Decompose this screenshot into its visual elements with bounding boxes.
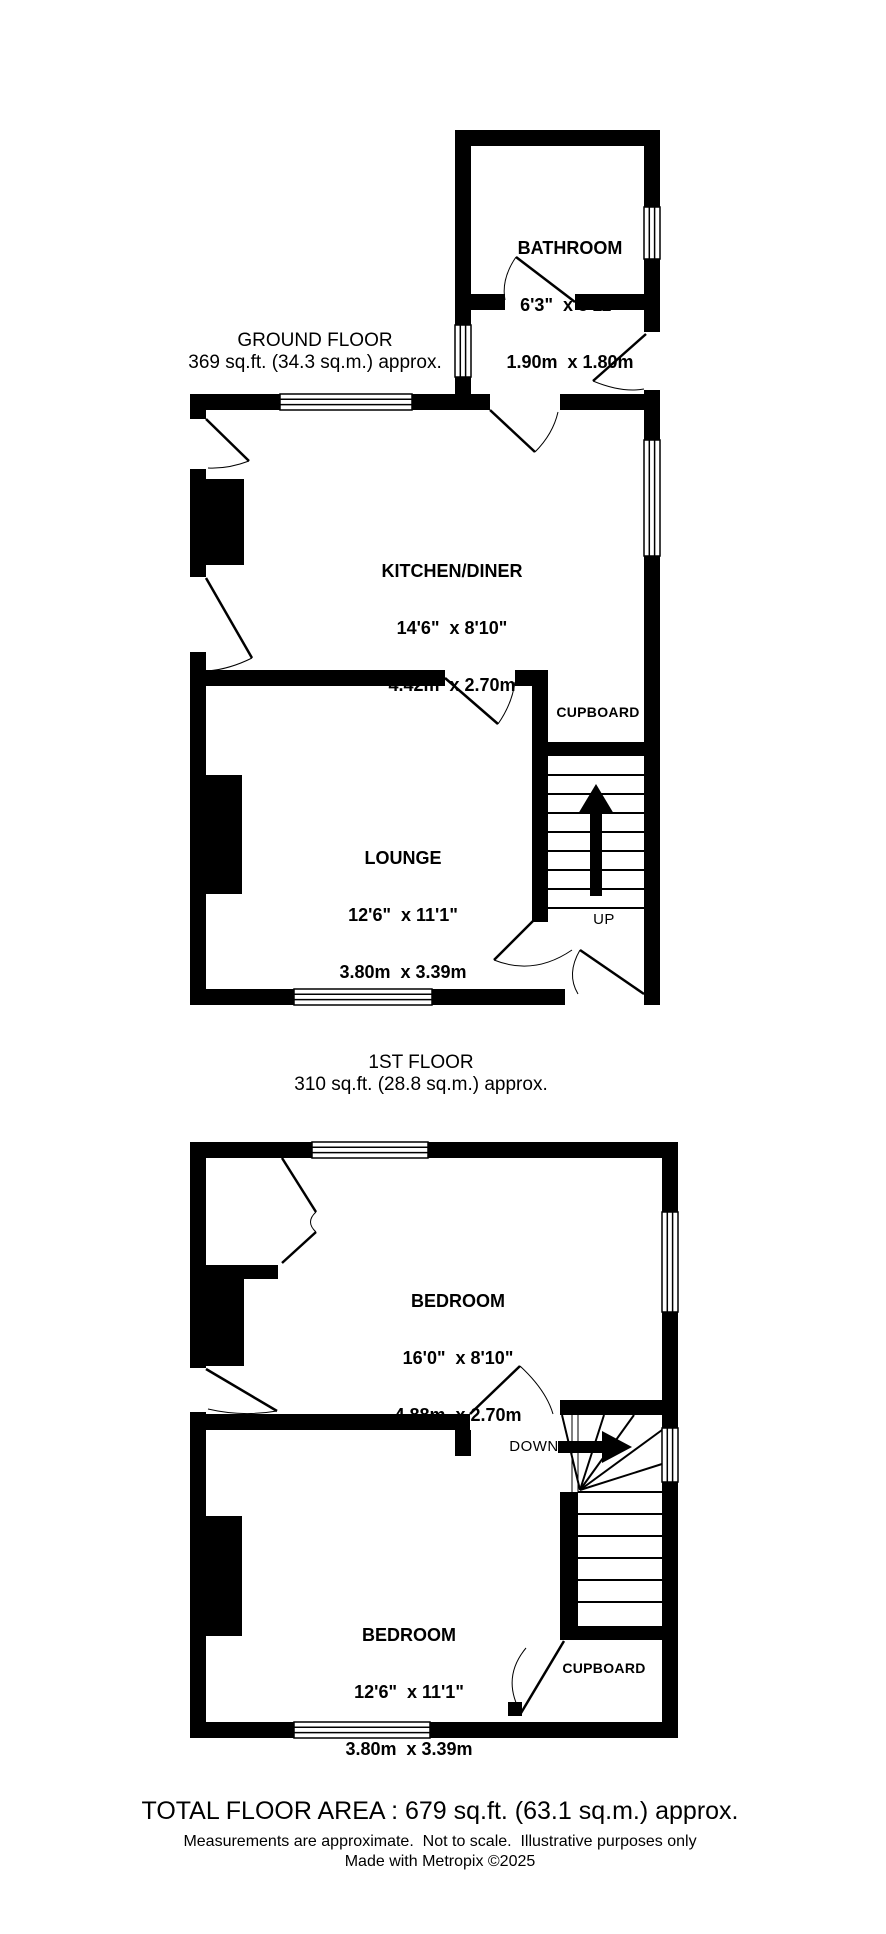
disclaimer-text: Measurements are approximate. Not to sca… (183, 1833, 696, 1851)
bathroom-metric: 1.90m x 1.80m (506, 353, 633, 372)
lounge-label: LOUNGE 12'6" x 11'1" 3.80m x 3.39m (339, 811, 466, 1001)
kitchen-diner-label: KITCHEN/DINER 14'6" x 8'10" 4.42m x 2.70… (381, 524, 522, 714)
bedroom-back-label: BEDROOM 12'6" x 11'1" 3.80m x 3.39m (345, 1588, 472, 1778)
bedroom-front-metric: 4.88m x 2.70m (394, 1406, 521, 1425)
kitchen-side-door-lower (206, 578, 252, 671)
first-floor-openings (190, 1368, 206, 1412)
window (312, 1142, 428, 1158)
lounge-imperial: 12'6" x 11'1" (339, 906, 466, 925)
lounge-metric: 3.80m x 3.39m (339, 963, 466, 982)
kitchen-diner-name: KITCHEN/DINER (381, 562, 522, 581)
first-cupboard-label: CUPBOARD (562, 1661, 645, 1676)
kitchen-entry-door (490, 410, 558, 452)
lounge-stair-door (494, 912, 572, 966)
kitchen-diner-metric: 4.42m x 2.70m (381, 676, 522, 695)
ground-floor-title: GROUND FLOOR 369 sq.ft. (34.3 sq.m.) app… (188, 330, 441, 374)
first-floor-title: 1ST FLOOR 310 sq.ft. (28.8 sq.m.) approx… (294, 1052, 547, 1096)
ground-staircase (548, 775, 644, 908)
bedroom-front-label: BEDROOM 16'0" x 8'10" 4.88m x 2.70m (394, 1254, 521, 1444)
floorplan-page: GROUND FLOOR 369 sq.ft. (34.3 sq.m.) app… (0, 0, 886, 1934)
up-label: UP (593, 912, 615, 928)
bedroom-side-door (206, 1369, 277, 1414)
up-arrow-icon (578, 784, 614, 896)
window (662, 1212, 678, 1312)
bathroom-name: BATHROOM (506, 239, 633, 258)
front-door (572, 950, 644, 994)
first-floor-name: 1ST FLOOR (294, 1052, 547, 1074)
ground-floor-area: 369 sq.ft. (34.3 sq.m.) approx. (188, 352, 441, 374)
credit-text: Made with Metropix ©2025 (345, 1853, 536, 1871)
bedroom-back-name: BEDROOM (345, 1626, 472, 1645)
ground-floor-name: GROUND FLOOR (188, 330, 441, 352)
first-floor-area: 310 sq.ft. (28.8 sq.m.) approx. (294, 1074, 547, 1096)
down-label: DOWN (509, 1439, 559, 1455)
window (455, 325, 471, 377)
bedroom-front-imperial: 16'0" x 8'10" (394, 1349, 521, 1368)
total-floor-area: TOTAL FLOOR AREA : 679 sq.ft. (63.1 sq.m… (142, 1798, 739, 1825)
window (280, 394, 412, 410)
kitchen-side-door-upper (206, 419, 249, 468)
window (644, 440, 660, 556)
bedroom-front-name: BEDROOM (394, 1292, 521, 1311)
lounge-name: LOUNGE (339, 849, 466, 868)
straight-treads (578, 1492, 662, 1602)
window (644, 207, 660, 259)
down-arrow-icon (558, 1431, 632, 1463)
bathroom-imperial: 6'3" x 5'11" (506, 296, 633, 315)
window (662, 1428, 678, 1482)
kitchen-diner-imperial: 14'6" x 8'10" (381, 619, 522, 638)
ground-cupboard-label: CUPBOARD (556, 705, 639, 720)
bedroom-back-imperial: 12'6" x 11'1" (345, 1683, 472, 1702)
bedroom-back-metric: 3.80m x 3.39m (345, 1740, 472, 1759)
closet-double-doors (282, 1158, 316, 1263)
bathroom-label: BATHROOM 6'3" x 5'11" 1.90m x 1.80m (506, 201, 633, 391)
